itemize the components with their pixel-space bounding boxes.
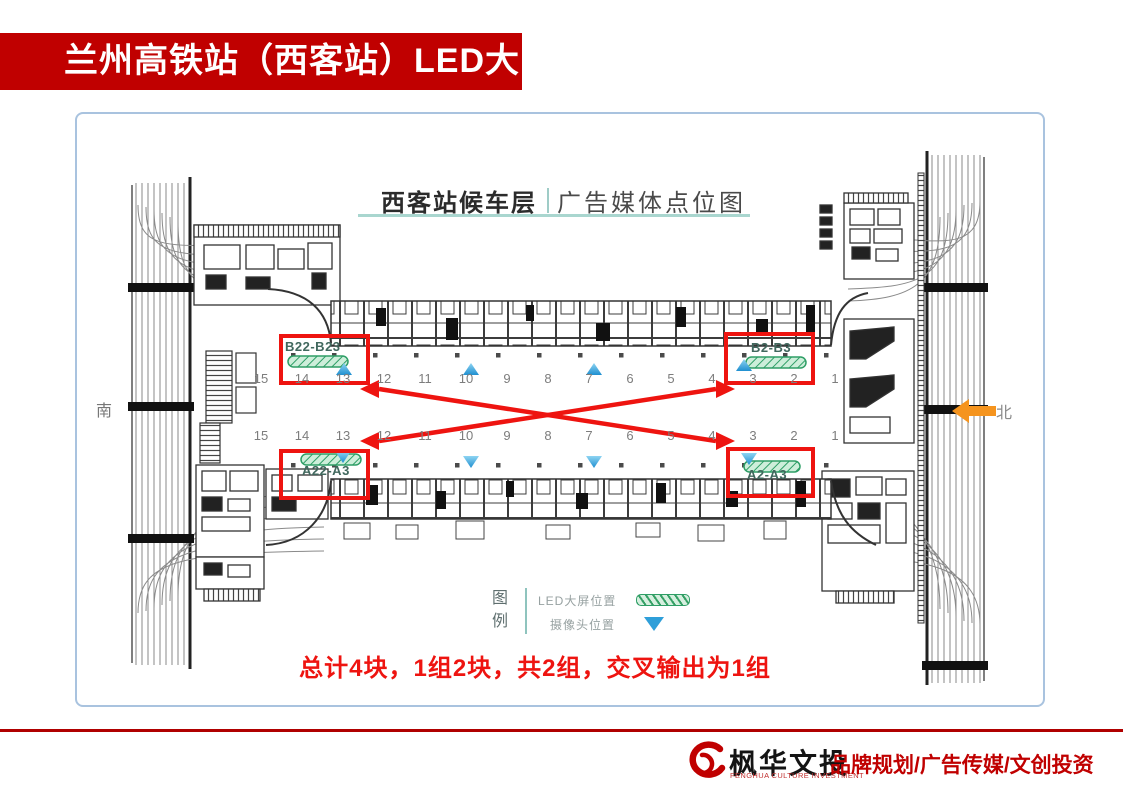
compass-south-label: 南 bbox=[96, 397, 112, 421]
map-title-underline bbox=[358, 214, 750, 217]
gate-number: 14 bbox=[289, 371, 315, 386]
gate-number: 11 bbox=[412, 428, 438, 443]
gate-number: 9 bbox=[494, 428, 520, 443]
gate-number: 4 bbox=[699, 371, 725, 386]
gate-number: 11 bbox=[412, 371, 438, 386]
legend-item-camera-label: 摄像头位置 bbox=[550, 616, 615, 633]
led-strip-swatch-icon bbox=[636, 594, 690, 606]
gate-number: 5 bbox=[658, 371, 684, 386]
gate-number: 7 bbox=[576, 371, 602, 386]
gate-number: 12 bbox=[371, 428, 397, 443]
gate-number: 10 bbox=[453, 371, 479, 386]
map-title: 西客站候车层 广告媒体点位图 bbox=[381, 183, 746, 218]
compass-north-label: 北 bbox=[996, 399, 1012, 423]
gate-number: 5 bbox=[658, 428, 684, 443]
gate-number: 14 bbox=[289, 428, 315, 443]
gate-number: 8 bbox=[535, 371, 561, 386]
gate-number: 8 bbox=[535, 428, 561, 443]
gate-number: 7 bbox=[576, 428, 602, 443]
map-title-separator bbox=[547, 188, 549, 213]
gate-number-row-bottom: 151413121110987654321 bbox=[0, 428, 1123, 444]
gate-number: 2 bbox=[781, 371, 807, 386]
slide-title-banner: 兰州高铁站（西客站）LED大屏 bbox=[0, 33, 522, 90]
gate-number: 13 bbox=[330, 371, 356, 386]
gate-number: 12 bbox=[371, 371, 397, 386]
gate-number: 6 bbox=[617, 371, 643, 386]
led-marker-label-b2-b3: B2-B3 bbox=[751, 340, 791, 355]
map-title-secondary: 广告媒体点位图 bbox=[557, 183, 746, 218]
gate-number: 10 bbox=[453, 428, 479, 443]
gate-number: 15 bbox=[248, 371, 274, 386]
led-marker-label-b22-b23: B22-B23 bbox=[285, 339, 341, 354]
gate-number: 13 bbox=[330, 428, 356, 443]
upper-right-building bbox=[820, 193, 914, 279]
gate-number: 1 bbox=[822, 371, 848, 386]
summary-text: 总计4块，1组2块，共2组，交叉输出为1组 bbox=[10, 648, 1060, 683]
gate-number: 15 bbox=[248, 428, 274, 443]
camera-triangle-swatch-icon bbox=[644, 617, 664, 631]
upper-left-building bbox=[194, 225, 340, 305]
right-platform-edge bbox=[918, 173, 924, 623]
legend-title: 图例 bbox=[490, 587, 510, 633]
gate-number: 2 bbox=[781, 428, 807, 443]
footer-divider-line bbox=[0, 729, 1123, 732]
led-strip-b2-b3 bbox=[746, 357, 806, 368]
gate-number-row-top: 151413121110987654321 bbox=[0, 371, 1123, 387]
gate-number: 1 bbox=[822, 428, 848, 443]
led-marker-label-a2-a3: A2-A3 bbox=[747, 467, 787, 482]
company-tagline: 品牌规划/广告传媒/文创投资 bbox=[830, 749, 1094, 779]
gate-number: 3 bbox=[740, 428, 766, 443]
led-marker-label-a22-a3: A22-A3 bbox=[302, 463, 350, 478]
legend-item-led-label: LED大屏位置 bbox=[538, 592, 616, 609]
gate-number: 4 bbox=[699, 428, 725, 443]
map-title-primary: 西客站候车层 bbox=[381, 183, 537, 218]
gate-number: 6 bbox=[617, 428, 643, 443]
company-logo-icon bbox=[683, 739, 727, 785]
bottom-left-building bbox=[196, 465, 328, 601]
left-mid-buildings bbox=[200, 351, 256, 463]
bottom-right-building bbox=[822, 471, 914, 603]
led-strip-b22-b23 bbox=[288, 356, 348, 367]
shop-corridor-bottom bbox=[331, 479, 831, 541]
legend-divider bbox=[525, 588, 527, 634]
gate-number: 3 bbox=[740, 371, 766, 386]
gate-number: 9 bbox=[494, 371, 520, 386]
